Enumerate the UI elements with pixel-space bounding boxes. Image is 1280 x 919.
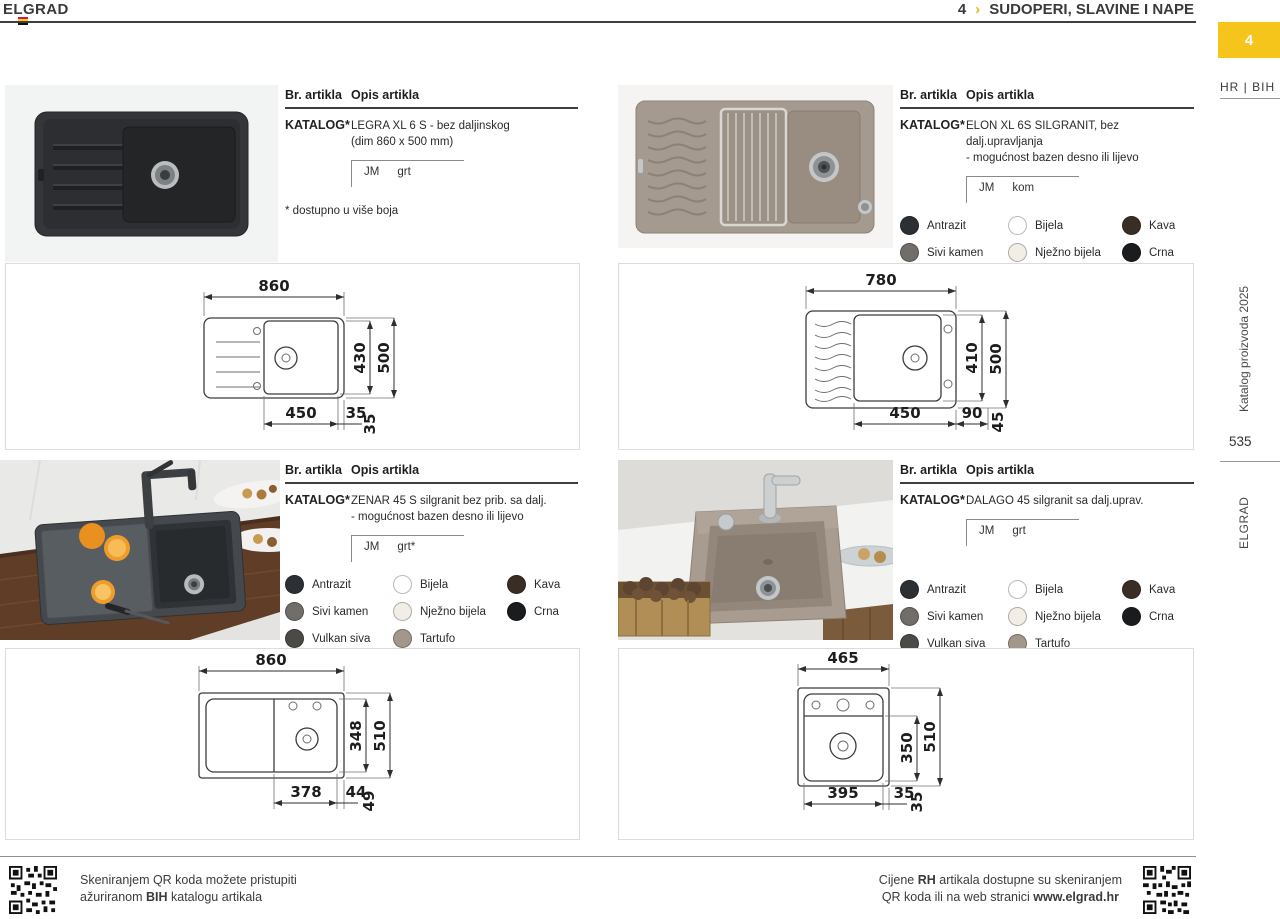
color-dot — [393, 602, 412, 621]
color-options: Antrazit Bijela Kava Sivi kamen Nježno b… — [285, 575, 578, 648]
product-info-legra: Br. artikla Opis artikla KATALOG* LEGRA … — [285, 88, 578, 217]
dim-inner-height: 348 — [347, 720, 365, 751]
color-dot — [1008, 607, 1027, 626]
dim-margin-v: 49 — [360, 791, 378, 812]
color-dot — [285, 602, 304, 621]
product-photo-legra — [5, 85, 278, 262]
page-number: 535 — [1229, 434, 1252, 449]
unit-value: grt — [1012, 525, 1025, 537]
qr-code-bih — [8, 866, 58, 919]
unit-box: JM kom — [966, 176, 1079, 203]
dim-basin-width: 378 — [290, 783, 321, 801]
unit-box: JM grt — [351, 160, 464, 187]
color-swatch: Kava — [1122, 216, 1194, 235]
color-swatch: Nježno bijela — [1008, 607, 1122, 626]
color-swatch: Antrazit — [285, 575, 393, 594]
color-swatch: Sivi kamen — [900, 607, 1008, 626]
color-swatch: Bijela — [393, 575, 507, 594]
color-swatch: Antrazit — [900, 580, 1008, 599]
dim-width: 860 — [258, 277, 289, 295]
language-label: HR | BIH — [1220, 80, 1275, 94]
dim-margin-v: 35 — [361, 414, 379, 435]
column-article: Br. artikla — [900, 88, 966, 102]
color-dot — [393, 575, 412, 594]
color-options: Antrazit Bijela Kava Sivi kamen Nježno b… — [900, 580, 1194, 653]
unit-value: kom — [1012, 182, 1034, 194]
brand-logo-text: ELGRAD — [3, 1, 69, 18]
product-photo-zenar — [0, 460, 280, 640]
unit-label: JM — [364, 166, 379, 178]
dim-width: 465 — [827, 649, 858, 667]
color-dot — [900, 216, 919, 235]
column-description: Opis artikla — [351, 88, 419, 102]
dim-margin-v: 35 — [908, 792, 926, 813]
chapter-tab-number: 4 — [1245, 32, 1253, 49]
color-swatch: Crna — [1122, 243, 1194, 262]
color-swatch: Crna — [1122, 607, 1194, 626]
product-info-dalago: Br. artikla Opis artikla KATALOG* DALAGO… — [900, 463, 1194, 653]
color-dot — [507, 575, 526, 594]
dim-width: 780 — [865, 271, 896, 289]
color-swatch: Bijela — [1008, 216, 1122, 235]
color-dot — [285, 629, 304, 648]
technical-drawing-legra: 860 430 500 450 35 35 — [5, 263, 580, 450]
edition-label: Katalog proizvoda 2025 — [1237, 286, 1251, 412]
dim-basin-width: 450 — [889, 404, 920, 422]
article-description: ELON XL 6S SILGRANIT, bez dalj.upravljan… — [966, 118, 1194, 166]
table-header: Br. artikla Opis artikla — [285, 463, 578, 484]
unit-label: JM — [979, 525, 994, 537]
chapter-title: SUDOPERI, SLAVINE I NAPE — [989, 1, 1194, 18]
column-description: Opis artikla — [351, 463, 419, 477]
unit-box: JM grt — [966, 519, 1079, 546]
table-header: Br. artikla Opis artikla — [285, 88, 578, 109]
article-code: KATALOG* — [900, 118, 966, 166]
dim-inner-height: 350 — [898, 732, 916, 763]
qr-code-rh — [1141, 866, 1193, 919]
unit-value: grt — [397, 166, 410, 178]
footer-note-left: Skeniranjem QR koda možete pristupiti až… — [80, 872, 297, 906]
column-description: Opis artikla — [966, 88, 1034, 102]
dim-outer-height: 510 — [371, 720, 389, 751]
dim-outer-height: 500 — [987, 343, 1005, 374]
color-swatch: Tartufo — [393, 629, 507, 648]
color-dot — [900, 580, 919, 599]
footer-rule — [0, 856, 1196, 857]
product-info-zenar: Br. artikla Opis artikla KATALOG* ZENAR … — [285, 463, 578, 648]
breadcrumb: 4 › SUDOPERI, SLAVINE I NAPE — [958, 1, 1194, 18]
footer-note-right: Cijene RH artikala dostupne su skeniranj… — [879, 872, 1122, 906]
color-swatch: Nježno bijela — [1008, 243, 1122, 262]
column-article: Br. artikla — [285, 88, 351, 102]
color-dot — [900, 607, 919, 626]
color-dot — [1122, 216, 1141, 235]
dim-width: 860 — [255, 651, 286, 669]
color-dot — [1008, 216, 1027, 235]
article-code: KATALOG* — [900, 493, 966, 509]
product-photo-elon — [618, 85, 893, 248]
color-swatch: Sivi kamen — [285, 602, 393, 621]
chapter-number: 4 — [958, 1, 966, 18]
color-dot — [1122, 580, 1141, 599]
dim-margin: 90 — [962, 404, 983, 422]
chevron-right-icon: › — [975, 1, 980, 18]
color-swatch: Crna — [507, 602, 578, 621]
color-swatch: Vulkan siva — [285, 629, 393, 648]
color-swatch: Sivi kamen — [900, 243, 1008, 262]
color-dot — [1122, 607, 1141, 626]
technical-drawing-zenar: 860 348 510 378 44 49 — [5, 648, 580, 840]
color-dot — [285, 575, 304, 594]
chapter-tab: 4 — [1218, 22, 1280, 58]
dim-margin-v: 45 — [989, 412, 1007, 433]
header-rule — [0, 21, 1196, 23]
color-dot — [1008, 243, 1027, 262]
technical-drawing-elon: 780 410 500 450 90 45 — [618, 263, 1194, 450]
sidebar-brand-label: ELGRAD — [1237, 497, 1251, 549]
sidebar-divider — [1220, 461, 1280, 462]
unit-label: JM — [364, 541, 379, 553]
color-swatch: Kava — [1122, 580, 1194, 599]
product-info-elon: Br. artikla Opis artikla KATALOG* ELON X… — [900, 88, 1194, 289]
dim-basin-width: 450 — [285, 404, 316, 422]
column-description: Opis artikla — [966, 463, 1034, 477]
color-dot — [507, 602, 526, 621]
article-description: LEGRA XL 6 S - bez daljinskog(dim 860 x … — [351, 118, 510, 150]
dim-outer-height: 500 — [375, 342, 393, 373]
color-swatch: Bijela — [1008, 580, 1122, 599]
dim-inner-height: 410 — [963, 342, 981, 373]
color-dot — [393, 629, 412, 648]
availability-note: * dostupno u više boja — [285, 205, 578, 217]
column-article: Br. artikla — [900, 463, 966, 477]
technical-drawing-dalago: 465 350 510 395 35 35 — [618, 648, 1194, 840]
dim-outer-height: 510 — [921, 721, 939, 752]
article-code: KATALOG* — [285, 118, 351, 150]
article-code: KATALOG* — [285, 493, 351, 525]
table-header: Br. artikla Opis artikla — [900, 88, 1194, 109]
article-description: DALAGO 45 silgranit sa dalj.uprav. — [966, 493, 1143, 509]
article-description: ZENAR 45 S silgranit bez prib. sa dalj.-… — [351, 493, 547, 525]
dim-inner-height: 430 — [351, 342, 369, 373]
table-header: Br. artikla Opis artikla — [900, 463, 1194, 484]
product-photo-dalago — [618, 460, 893, 640]
color-dot — [900, 243, 919, 262]
color-swatch: Nježno bijela — [393, 602, 507, 621]
column-article: Br. artikla — [285, 463, 351, 477]
unit-label: JM — [979, 182, 994, 194]
color-dot — [1122, 243, 1141, 262]
color-swatch: Antrazit — [900, 216, 1008, 235]
unit-box: JM grt* — [351, 535, 464, 562]
color-swatch: Kava — [507, 575, 578, 594]
unit-value: grt* — [397, 541, 415, 553]
dim-basin-width: 395 — [827, 784, 858, 802]
sidebar-divider — [1220, 98, 1280, 99]
color-dot — [1008, 580, 1027, 599]
